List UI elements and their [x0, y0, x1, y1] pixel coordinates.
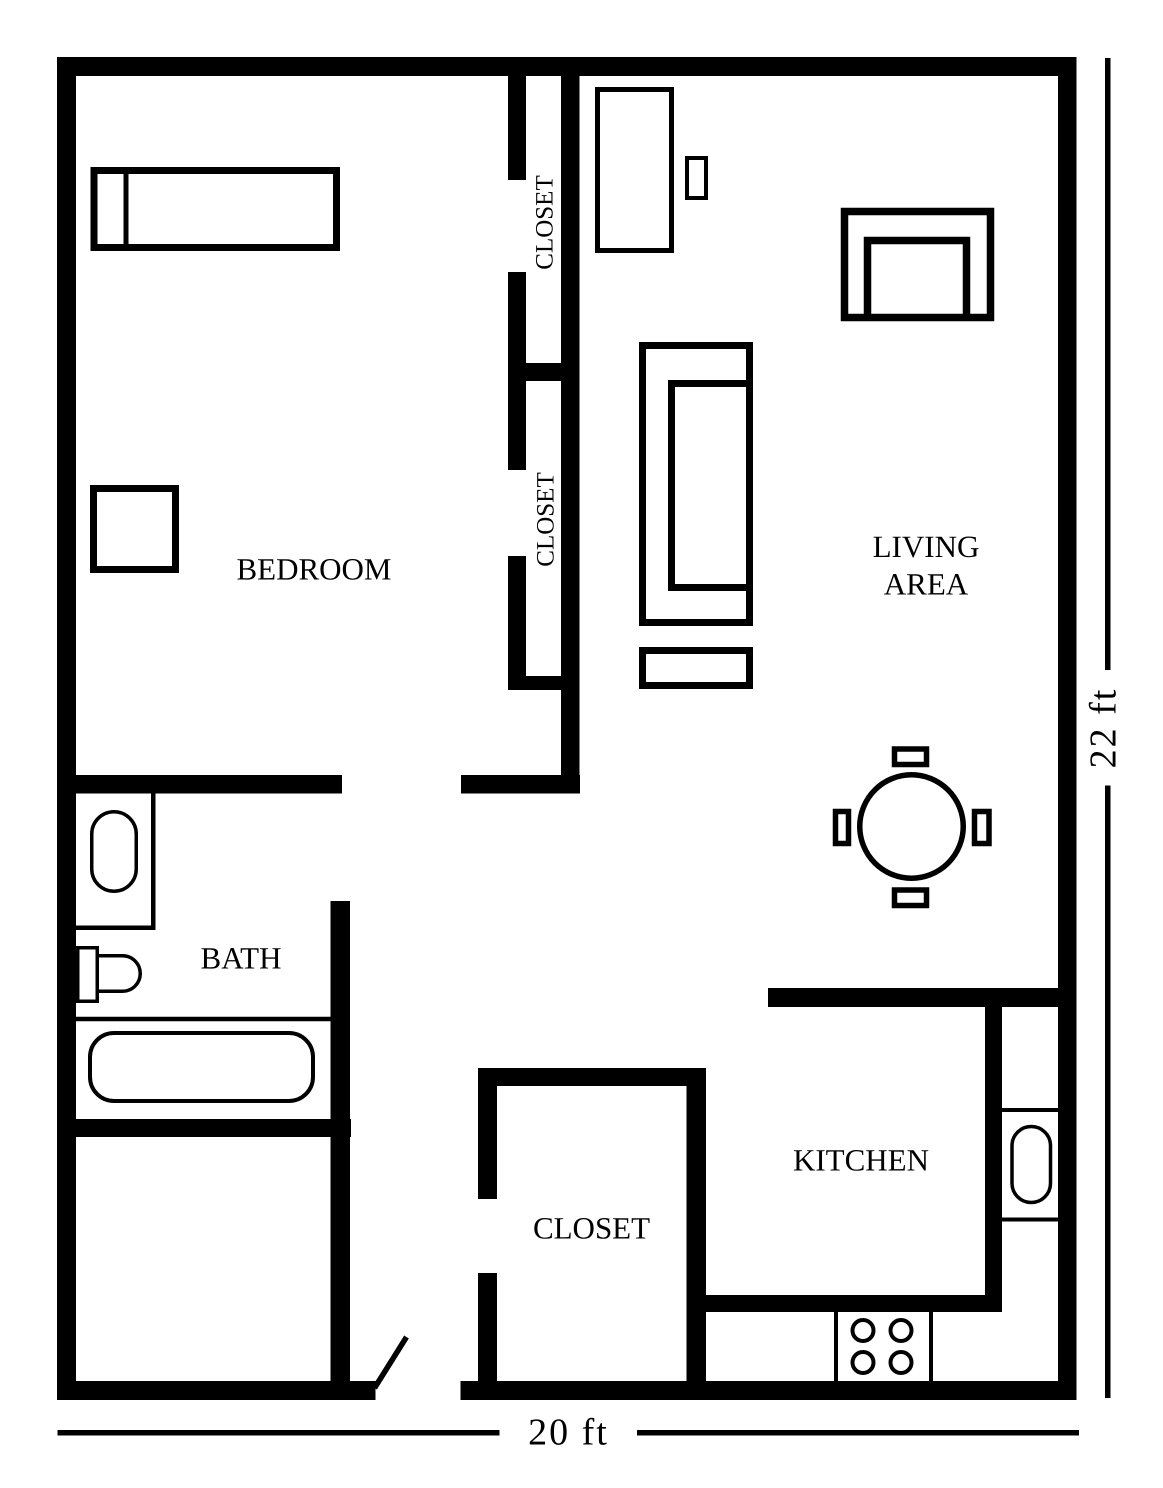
svg-text:BATH: BATH: [201, 941, 282, 976]
svg-text:20 ft: 20 ft: [528, 1412, 609, 1454]
svg-text:CLOSET: CLOSET: [533, 472, 560, 566]
svg-text:22 ft: 22 ft: [1083, 688, 1125, 769]
svg-text:CLOSET: CLOSET: [533, 1211, 650, 1246]
svg-text:KITCHEN: KITCHEN: [793, 1143, 929, 1178]
svg-text:LIVING: LIVING: [873, 529, 980, 564]
svg-text:BEDROOM: BEDROOM: [236, 552, 391, 587]
svg-text:CLOSET: CLOSET: [532, 175, 559, 269]
svg-text:AREA: AREA: [884, 567, 969, 602]
